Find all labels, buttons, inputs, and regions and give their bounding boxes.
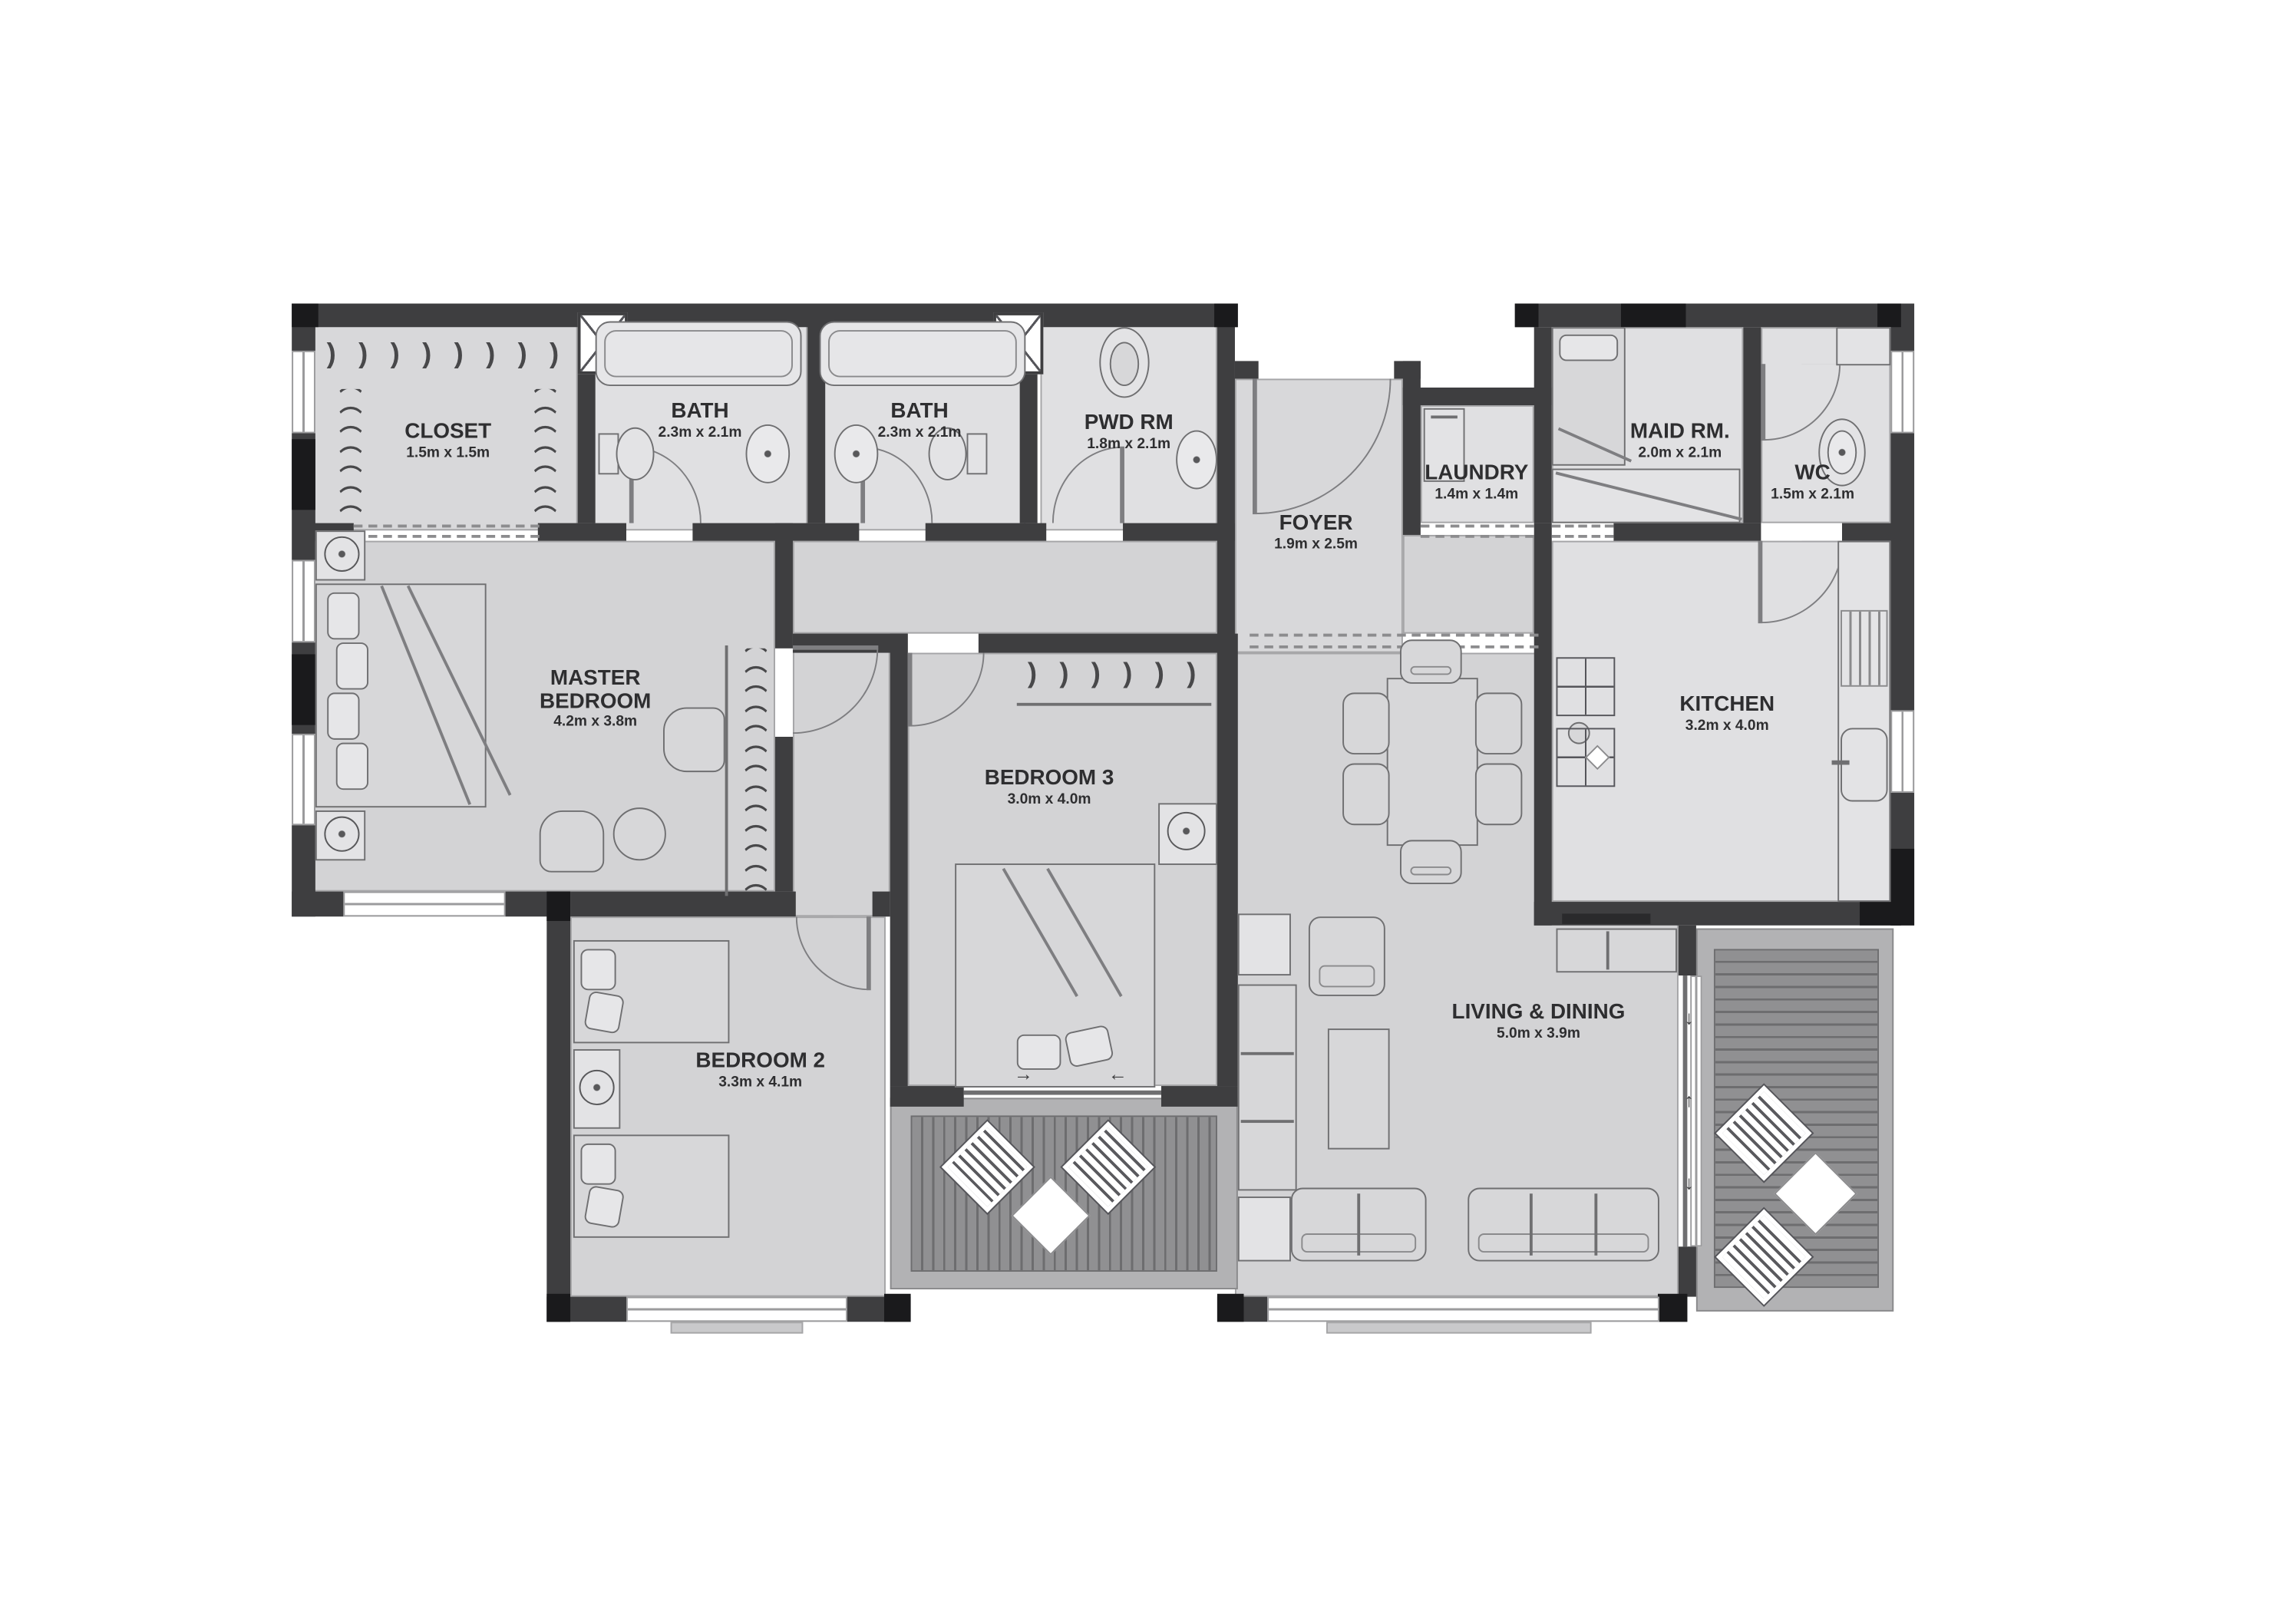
pillow [580, 1144, 616, 1185]
cushion-line [1530, 1193, 1532, 1256]
wall [1743, 327, 1761, 523]
room-label-kitchen: KITCHEN 3.2m x 4.0m [1679, 695, 1775, 735]
sink-icon [1176, 431, 1217, 490]
room-dims: 3.0m x 4.0m [985, 791, 1114, 809]
room-label-wc: WC 1.5m x 2.1m [1771, 463, 1854, 503]
bedroom2-door-leaf [867, 916, 871, 990]
column [1217, 1294, 1244, 1322]
bathtub [820, 322, 1026, 386]
wall [873, 892, 890, 917]
dish-rack [1841, 610, 1887, 687]
room-label-maid: MAID RM. 2.0m x 2.1m [1630, 422, 1730, 463]
sofa-section [1238, 985, 1297, 1191]
sink-icon [746, 424, 791, 484]
column [1877, 304, 1901, 328]
window [1267, 1297, 1659, 1322]
bathtub [596, 322, 802, 386]
room-dims: 4.2m x 3.8m [508, 714, 682, 731]
cushion-line [1241, 1120, 1294, 1122]
corridor-floor [793, 541, 1217, 634]
pwd-door-leaf [1120, 447, 1124, 523]
window [1890, 351, 1914, 434]
toilet-seat [1110, 342, 1139, 386]
pillow [336, 642, 368, 689]
room-name: MASTER BEDROOM [508, 668, 682, 715]
wall [1534, 327, 1552, 523]
lamp-icon [324, 536, 359, 572]
room-label-living: LIVING & DINING 5.0m x 3.9m [1452, 1002, 1626, 1043]
pillow [327, 592, 359, 639]
threshold-step [671, 1322, 804, 1333]
maid-door-leaf [1758, 541, 1763, 624]
room-name: MAID RM. [1630, 422, 1730, 445]
room-dims: 1.4m x 1.4m [1425, 486, 1528, 503]
room-name: WC [1771, 463, 1854, 486]
column [292, 654, 315, 725]
wall [1217, 634, 1238, 1086]
slide-arrow-icon: ↑ [1685, 1094, 1694, 1108]
column [292, 439, 315, 510]
window [1890, 710, 1914, 793]
dining-chair [1342, 764, 1389, 826]
room-label-master: MASTER BEDROOM 4.2m x 3.8m [508, 668, 682, 732]
wardrobe-outline [1017, 703, 1211, 705]
sliding-door [964, 1091, 1161, 1095]
open-boundary [1250, 634, 1538, 637]
dining-chair [1342, 692, 1389, 754]
side-table [613, 807, 666, 860]
master-door-leaf [793, 645, 878, 650]
wall [1515, 304, 1901, 328]
side-table [1238, 1197, 1291, 1261]
slide-arrow-icon: ← [1108, 1067, 1127, 1081]
entry-door-leaf [1253, 378, 1257, 514]
room-dims: 3.3m x 4.1m [695, 1074, 825, 1091]
room-name: KITCHEN [1679, 695, 1775, 718]
room-name: LAUNDRY [1425, 463, 1528, 486]
pillow [336, 743, 368, 790]
room-name: BATH [878, 401, 962, 424]
armchair [1309, 916, 1385, 996]
wall [1217, 315, 1235, 655]
room-label-bath2: BATH 2.3m x 2.1m [878, 401, 962, 442]
room-name: PWD RM [1085, 413, 1174, 436]
cushion-line [1241, 1052, 1294, 1055]
master-wardrobe-hatch: ⌒ ⌒ ⌒ ⌒ ⌒ ⌒ ⌒ ⌒ ⌒ ⌒ ⌒ ⌒ ⌒ [728, 649, 784, 896]
cushion-line [1594, 1193, 1596, 1256]
wall [1403, 388, 1552, 405]
column [1214, 304, 1238, 328]
pillow [1559, 335, 1618, 361]
open-boundary [1552, 525, 1614, 528]
column [546, 892, 570, 921]
slide-arrow-icon: ↓ [1685, 1011, 1694, 1025]
armchair [540, 810, 604, 873]
window [292, 351, 315, 434]
open-boundary [354, 525, 540, 528]
column [884, 1294, 911, 1322]
room-dims: 1.8m x 2.1m [1085, 436, 1174, 454]
closet-rail-hatch: ) ) ) ) ) ) ) ) ) ) ) ) ) ) ) [322, 330, 572, 383]
room-dims: 5.0m x 3.9m [1452, 1025, 1626, 1043]
pillow [583, 990, 625, 1034]
wall [546, 892, 570, 1322]
wall [775, 523, 793, 649]
side-table [1238, 913, 1291, 975]
coffee-table [1328, 1028, 1390, 1149]
wall [890, 1086, 964, 1107]
pillow [327, 692, 359, 739]
wall [1842, 523, 1901, 541]
dining-table [1387, 678, 1478, 846]
screenshot: ) ) ) ) ) ) ) ) ) ) ) ) ) ) ) ⌒ ⌒ ⌒ ⌒ ⌒ … [0, 0, 2278, 1624]
window [292, 734, 315, 825]
room-label-foyer: FOYER 1.9m x 2.5m [1274, 513, 1358, 554]
closet-rail-hatch: ⌒ ⌒ ⌒ ⌒ ⌒ ⌒ ⌒ [516, 389, 575, 525]
wardrobe-outline [725, 645, 728, 896]
console-line [1606, 931, 1609, 969]
lamp-icon [579, 1070, 615, 1105]
room-label-pwd: PWD RM 1.8m x 2.1m [1085, 413, 1174, 454]
wall [890, 634, 908, 1086]
kitchen-corridor-floor [1403, 535, 1534, 634]
room-dims: 1.5m x 2.1m [1771, 486, 1854, 503]
window [292, 560, 315, 643]
open-boundary [1552, 535, 1614, 538]
pillow [580, 949, 616, 990]
open-boundary [1421, 525, 1534, 528]
sink-icon [834, 424, 879, 484]
room-name: FOYER [1274, 513, 1358, 536]
room-label-bedroom3: BEDROOM 3 3.0m x 4.0m [985, 768, 1114, 809]
bedroom3-door-leaf [908, 653, 913, 727]
bedroom3-wardrobe-hatch: ) ) ) ) ) ) ) ) ) ) ) [1020, 650, 1212, 703]
column [1621, 304, 1685, 328]
column [1515, 304, 1539, 328]
room-dims: 2.0m x 2.1m [1630, 444, 1730, 462]
faucet-icon [1832, 761, 1850, 765]
wall [1679, 926, 1696, 975]
dining-chair [1400, 840, 1462, 884]
wall [1235, 361, 1259, 378]
dining-chair [1400, 639, 1462, 684]
floor-plan: ) ) ) ) ) ) ) ) ) ) ) ) ) ) ) ⌒ ⌒ ⌒ ⌒ ⌒ … [0, 0, 2278, 1624]
toilet-tank [967, 433, 988, 474]
slide-arrow-icon: ↓ [1685, 1176, 1694, 1190]
tv-console [1557, 929, 1677, 973]
room-label-bath1: BATH 2.3m x 2.1m [659, 401, 742, 442]
column [546, 1294, 570, 1322]
dining-chair [1475, 764, 1522, 826]
column [1860, 902, 1901, 926]
slide-arrow-icon: ↑ [1685, 1243, 1694, 1258]
pillow [583, 1185, 625, 1229]
room-label-closet: CLOSET 1.5m x 1.5m [404, 422, 491, 463]
wall [926, 523, 1046, 541]
room-dims: 2.3m x 2.1m [878, 424, 962, 441]
kitchen-counter [1837, 541, 1890, 902]
room-name: BATH [659, 401, 742, 424]
open-boundary [354, 535, 540, 538]
washer-line [1431, 415, 1458, 418]
window [626, 1297, 847, 1322]
column [1658, 1294, 1687, 1322]
room-dims: 1.5m x 1.5m [404, 444, 491, 462]
wc-shelf [1836, 327, 1890, 365]
closet-rail-hatch: ⌒ ⌒ ⌒ ⌒ ⌒ ⌒ ⌒ [322, 389, 381, 525]
room-dims: 1.9m x 2.5m [1274, 536, 1358, 553]
room-dims: 3.2m x 4.0m [1679, 718, 1775, 735]
room-dims: 2.3m x 2.1m [659, 424, 742, 441]
lamp-icon [324, 817, 359, 852]
room-name: BEDROOM 2 [695, 1051, 825, 1074]
open-boundary [1421, 535, 1534, 538]
room-label-laundry: LAUNDRY 1.4m x 1.4m [1425, 463, 1528, 503]
lamp-icon [1167, 812, 1206, 850]
tv-screen [1562, 913, 1650, 923]
wall [538, 523, 626, 541]
wall [1161, 1086, 1238, 1107]
room-name: CLOSET [404, 422, 491, 445]
slide-arrow-icon: → [1014, 1067, 1033, 1081]
stove-burner-icon [1557, 657, 1616, 716]
dining-chair [1475, 692, 1522, 754]
cushion-line [1357, 1193, 1359, 1256]
open-boundary [1250, 645, 1538, 649]
threshold-step [1326, 1322, 1592, 1333]
wall [1534, 523, 1552, 926]
wc-door-leaf [1761, 364, 1765, 441]
column [292, 304, 319, 328]
room-name: LIVING & DINING [1452, 1002, 1626, 1025]
wall [1613, 523, 1761, 541]
room-label-bedroom2: BEDROOM 2 3.3m x 4.1m [695, 1051, 825, 1091]
toilet-bowl [616, 427, 655, 480]
room-name: BEDROOM 3 [985, 768, 1114, 791]
sofa-3seat [1467, 1188, 1659, 1262]
window [343, 892, 505, 917]
